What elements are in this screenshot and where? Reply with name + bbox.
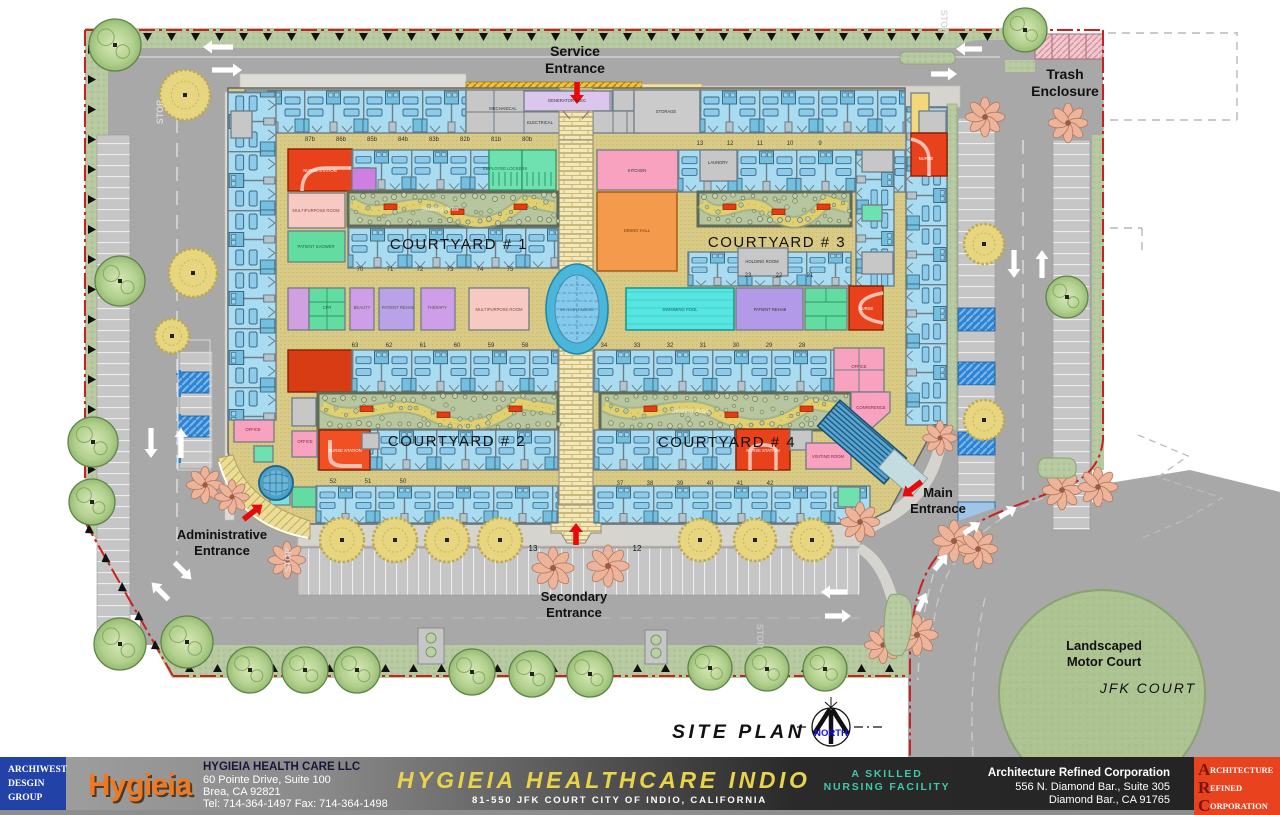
svg-text:RCHITECTURE: RCHITECTURE <box>1210 765 1274 775</box>
svg-text:13: 13 <box>697 141 704 147</box>
svg-text:81b: 81b <box>491 137 502 143</box>
svg-text:GENERATOR ELEC: GENERATOR ELEC <box>548 98 586 103</box>
svg-text:ARCHIWEST: ARCHIWEST <box>8 765 68 775</box>
svg-text:HYGIEIA HEALTH CARE LLC: HYGIEIA HEALTH CARE LLC <box>203 761 360 773</box>
svg-text:87b: 87b <box>305 137 316 143</box>
svg-text:60 Pointe Drive, Suite 100: 60 Pointe Drive, Suite 100 <box>203 774 331 786</box>
svg-text:22: 22 <box>776 273 783 279</box>
svg-text:HYGIEIA HEALTHCARE INDIO: HYGIEIA HEALTHCARE INDIO <box>397 767 811 793</box>
svg-text:NURSE: NURSE <box>919 156 934 161</box>
svg-text:Landscaped: Landscaped <box>1066 638 1142 653</box>
svg-text:37: 37 <box>617 481 624 487</box>
svg-text:Main: Main <box>923 485 953 500</box>
svg-text:SKYLIGHT ABOVE: SKYLIGHT ABOVE <box>560 307 595 312</box>
svg-text:73: 73 <box>447 267 454 273</box>
svg-text:C: C <box>1198 796 1210 815</box>
svg-text:51: 51 <box>365 479 372 485</box>
svg-text:41: 41 <box>737 481 744 487</box>
svg-text:Tel: 714-364-1497 Fax: 7: Tel: 714-364-1497 Fax: 714-364-1498 <box>203 798 388 810</box>
svg-text:52: 52 <box>330 479 337 485</box>
svg-text:39: 39 <box>677 481 684 487</box>
svg-text:12: 12 <box>633 544 642 553</box>
svg-text:EMPLOYEE LOCKERS: EMPLOYEE LOCKERS <box>483 166 527 171</box>
svg-text:84b: 84b <box>398 137 409 143</box>
svg-text:PATIENT SHOWER: PATIENT SHOWER <box>298 244 335 249</box>
svg-text:59: 59 <box>488 343 495 349</box>
svg-text:MULTIPURPOSE ROOM: MULTIPURPOSE ROOM <box>476 307 523 312</box>
svg-text:DINING HALL: DINING HALL <box>624 228 651 233</box>
svg-text:STOP: STOP <box>939 10 949 34</box>
svg-text:CONFERENCE: CONFERENCE <box>856 405 886 410</box>
svg-text:HOLDING ROOM: HOLDING ROOM <box>745 259 779 264</box>
svg-text:32: 32 <box>667 343 674 349</box>
svg-text:556 N. Diamond Bar., Suite 305: 556 N. Diamond Bar., Suite 305 <box>1015 781 1170 793</box>
svg-text:70: 70 <box>357 267 364 273</box>
svg-text:PATIENT REHAB: PATIENT REHAB <box>382 305 415 310</box>
svg-text:11: 11 <box>757 141 764 147</box>
svg-text:21: 21 <box>807 273 814 279</box>
svg-text:Seating Area: Seating Area <box>421 206 459 213</box>
svg-text:42: 42 <box>767 481 774 487</box>
svg-text:JFK COURT: JFK COURT <box>1099 680 1196 696</box>
svg-text:80b: 80b <box>522 137 533 143</box>
svg-text:COURTYARD # 2: COURTYARD # 2 <box>388 433 526 450</box>
svg-text:38: 38 <box>647 481 654 487</box>
svg-text:NURSE STATION: NURSE STATION <box>303 168 336 173</box>
svg-text:A SKILLED: A SKILLED <box>851 768 922 780</box>
svg-text:31: 31 <box>700 343 707 349</box>
svg-text:Secondary: Secondary <box>541 589 608 604</box>
svg-text:82b: 82b <box>460 137 471 143</box>
svg-text:STOP: STOP <box>155 100 165 124</box>
svg-text:DESGIN: DESGIN <box>8 779 45 789</box>
svg-text:50: 50 <box>400 479 407 485</box>
svg-text:10: 10 <box>787 141 794 147</box>
svg-text:30: 30 <box>733 343 740 349</box>
svg-text:SITE PLAN: SITE PLAN <box>672 721 805 743</box>
svg-text:Motor Court: Motor Court <box>1067 654 1142 669</box>
svg-text:MULTIPURPOSE ROOM: MULTIPURPOSE ROOM <box>293 208 340 213</box>
svg-text:81-550 JFK COURT CITY OF I: 81-550 JFK COURT CITY OF INDIO, CALIFORN… <box>472 795 767 806</box>
svg-text:Administrative: Administrative <box>177 527 267 542</box>
svg-text:72: 72 <box>417 267 424 273</box>
svg-text:OFFICE: OFFICE <box>297 439 313 444</box>
svg-text:58: 58 <box>522 343 529 349</box>
svg-text:Entrance: Entrance <box>545 60 605 76</box>
svg-text:COURTYARD # 1: COURTYARD # 1 <box>390 236 528 253</box>
svg-text:KITCHEN: KITCHEN <box>628 168 646 173</box>
svg-text:Service: Service <box>550 43 600 59</box>
svg-text:Entrance: Entrance <box>546 605 602 620</box>
svg-text:33: 33 <box>634 343 641 349</box>
svg-text:63: 63 <box>352 343 359 349</box>
svg-text:NORTH: NORTH <box>814 728 848 739</box>
svg-text:61: 61 <box>420 343 427 349</box>
svg-text:13: 13 <box>529 544 538 553</box>
svg-text:Enclosure: Enclosure <box>1031 83 1099 99</box>
svg-text:Trash: Trash <box>1046 66 1083 82</box>
svg-text:Entrance: Entrance <box>194 543 250 558</box>
svg-text:BEAUTY: BEAUTY <box>354 305 371 310</box>
svg-text:STOP: STOP <box>755 624 765 648</box>
svg-text:71: 71 <box>387 267 394 273</box>
svg-text:PATIENT REHAB: PATIENT REHAB <box>754 307 787 312</box>
svg-text:STORAGE: STORAGE <box>656 109 677 114</box>
svg-text:COURTYARD # 3: COURTYARD # 3 <box>708 234 846 251</box>
svg-text:ELECTRICAL: ELECTRICAL <box>527 120 554 125</box>
svg-text:62: 62 <box>386 343 393 349</box>
svg-text:60: 60 <box>454 343 461 349</box>
svg-text:85b: 85b <box>367 137 378 143</box>
svg-text:Brea, CA 92821: Brea, CA 92821 <box>203 786 281 798</box>
svg-text:Architecture Refined Corporati: Architecture Refined Corporation <box>988 767 1170 779</box>
svg-text:EFINED: EFINED <box>1210 783 1242 793</box>
svg-text:SWIMMING POOL: SWIMMING POOL <box>662 307 698 312</box>
svg-text:74: 74 <box>477 267 484 273</box>
svg-text:23: 23 <box>745 273 752 279</box>
svg-text:LAUNDRY: LAUNDRY <box>708 160 728 165</box>
svg-text:29: 29 <box>766 343 773 349</box>
svg-text:THERAPY: THERAPY <box>427 305 447 310</box>
svg-text:86b: 86b <box>336 137 347 143</box>
svg-text:28: 28 <box>799 343 806 349</box>
svg-text:MECHANICAL: MECHANICAL <box>489 106 517 111</box>
svg-text:COURTYARD # 4: COURTYARD # 4 <box>658 434 796 451</box>
svg-text:40: 40 <box>707 481 714 487</box>
svg-text:NURSE STATION: NURSE STATION <box>328 448 361 453</box>
svg-text:STOP: STOP <box>283 548 293 572</box>
svg-text:CPR: CPR <box>323 305 332 310</box>
svg-text:Seating Area: Seating Area <box>671 408 709 415</box>
svg-text:12: 12 <box>727 141 734 147</box>
svg-text:83b: 83b <box>429 137 440 143</box>
svg-text:Diamond Bar., CA 91765: Diamond Bar., CA 91765 <box>1049 794 1170 806</box>
svg-text:OFFICE: OFFICE <box>851 364 867 369</box>
svg-text:ORPORATION: ORPORATION <box>1210 801 1269 811</box>
svg-text:OFFICE: OFFICE <box>245 427 261 432</box>
svg-text:GROUP: GROUP <box>8 793 43 803</box>
svg-text:34: 34 <box>601 343 608 349</box>
svg-text:75: 75 <box>507 267 514 273</box>
svg-text:NURSING FACILITY: NURSING FACILITY <box>824 781 951 793</box>
svg-text:Hygieia: Hygieia <box>88 767 193 802</box>
svg-text:Entrance: Entrance <box>910 501 966 516</box>
svg-text:VISITING ROOM: VISITING ROOM <box>812 454 845 459</box>
svg-text:NURSE: NURSE <box>859 306 874 311</box>
